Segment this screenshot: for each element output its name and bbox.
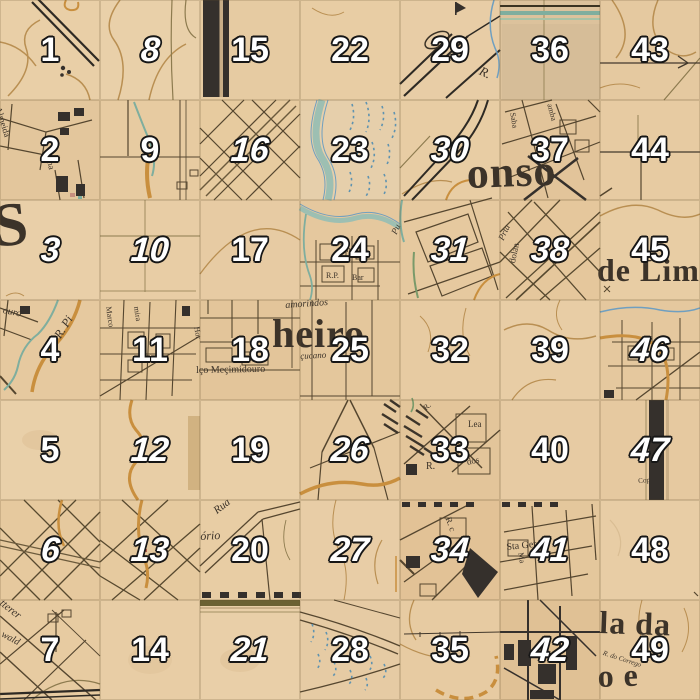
puzzle-tile-21[interactable]: 21: [200, 600, 300, 700]
puzzle-tile-37[interactable]: 37: [500, 100, 600, 200]
tile-number: 32: [431, 333, 469, 367]
puzzle-tile-34[interactable]: 34: [400, 500, 500, 600]
tile-number: 42: [530, 633, 570, 667]
puzzle-tile-4[interactable]: 4: [0, 300, 100, 400]
puzzle-tile-36[interactable]: 36: [500, 0, 600, 100]
puzzle-tile-14[interactable]: 14: [100, 600, 200, 700]
puzzle-tile-3[interactable]: 3: [0, 200, 100, 300]
puzzle-tile-45[interactable]: 45: [600, 200, 700, 300]
tile-number: 7: [41, 633, 60, 667]
puzzle-tile-19[interactable]: 19: [200, 400, 300, 500]
tile-number: 8: [139, 33, 160, 67]
puzzle-tile-20[interactable]: 20: [200, 500, 300, 600]
tile-number: 2: [41, 133, 60, 167]
tile-number: 47: [630, 433, 670, 467]
puzzle-tile-26[interactable]: 26: [300, 400, 400, 500]
puzzle-tile-27[interactable]: 27: [300, 500, 400, 600]
tile-number: 5: [41, 433, 60, 467]
puzzle-tile-48[interactable]: 48: [600, 500, 700, 600]
tile-number: 26: [330, 433, 370, 467]
tile-number: 30: [430, 133, 470, 167]
tile-number: 15: [231, 33, 269, 67]
tile-number: 48: [631, 533, 669, 567]
puzzle-tile-43[interactable]: 43: [600, 0, 700, 100]
puzzle-tile-12[interactable]: 12: [100, 400, 200, 500]
tile-number: 41: [530, 533, 570, 567]
tile-number: 29: [431, 33, 469, 67]
tile-number: 20: [231, 533, 269, 567]
puzzle-tile-49[interactable]: 49: [600, 600, 700, 700]
tile-number: 25: [331, 333, 369, 367]
tile-number: 36: [531, 33, 569, 67]
tile-number: 11: [132, 333, 168, 367]
tile-number: 23: [331, 133, 369, 167]
puzzle-tile-40[interactable]: 40: [500, 400, 600, 500]
puzzle-tile-29[interactable]: 29: [400, 0, 500, 100]
tile-number: 4: [41, 333, 60, 367]
tile-number: 35: [431, 633, 469, 667]
tile-number: 1: [41, 33, 60, 67]
puzzle-tile-47[interactable]: 47: [600, 400, 700, 500]
tile-number: 46: [630, 333, 670, 367]
puzzle-tile-16[interactable]: 16: [200, 100, 300, 200]
tile-number: 3: [39, 233, 60, 267]
puzzle-tile-10[interactable]: 10: [100, 200, 200, 300]
tile-number: 13: [130, 533, 170, 567]
tile-number: 37: [531, 133, 569, 167]
puzzle-tile-13[interactable]: 13: [100, 500, 200, 600]
tile-number: 33: [431, 433, 469, 467]
puzzle-tile-15[interactable]: 15: [200, 0, 300, 100]
puzzle-tile-46[interactable]: 46: [600, 300, 700, 400]
tile-number: 22: [331, 33, 369, 67]
puzzle-tile-6[interactable]: 6: [0, 500, 100, 600]
puzzle-tile-31[interactable]: 31: [400, 200, 500, 300]
tile-number: 38: [530, 233, 570, 267]
tile-number: 12: [130, 433, 170, 467]
tile-number: 24: [331, 233, 369, 267]
puzzle-tile-32[interactable]: 32: [400, 300, 500, 400]
puzzle-tile-7[interactable]: 7: [0, 600, 100, 700]
tile-number: 16: [230, 133, 270, 167]
tile-number: 6: [39, 533, 60, 567]
tile-number: 10: [130, 233, 170, 267]
tile-number: 19: [231, 433, 269, 467]
puzzle-tile-39[interactable]: 39: [500, 300, 600, 400]
tile-number: 14: [131, 633, 169, 667]
puzzle-tile-24[interactable]: 24: [300, 200, 400, 300]
puzzle-tile-17[interactable]: 17: [200, 200, 300, 300]
tile-number: 21: [230, 633, 270, 667]
puzzle-tile-9[interactable]: 9: [100, 100, 200, 200]
puzzle-tile-42[interactable]: 42: [500, 600, 600, 700]
tile-number: 45: [631, 233, 669, 267]
puzzle-tile-44[interactable]: 44: [600, 100, 700, 200]
puzzle-tile-35[interactable]: 35: [400, 600, 500, 700]
tile-number: 28: [331, 633, 369, 667]
tile-number: 43: [631, 33, 669, 67]
puzzle-tile-28[interactable]: 28: [300, 600, 400, 700]
tile-number: 49: [631, 633, 669, 667]
tile-number: 40: [531, 433, 569, 467]
puzzle-tile-23[interactable]: 23: [300, 100, 400, 200]
puzzle-tile-38[interactable]: 38: [500, 200, 600, 300]
puzzle-tile-18[interactable]: 18: [200, 300, 300, 400]
puzzle-tile-11[interactable]: 11: [100, 300, 200, 400]
puzzle-tile-8[interactable]: 8: [100, 0, 200, 100]
tile-number: 39: [531, 333, 569, 367]
tiles-layer: 1815222936432916233037443101724313845411…: [0, 0, 700, 700]
puzzle-tile-1[interactable]: 1: [0, 0, 100, 100]
puzzle-tile-41[interactable]: 41: [500, 500, 600, 600]
puzzle-board: Sonsoheirode Limla dao eAlmeidaLimaR.Sab…: [0, 0, 700, 700]
tile-number: 27: [330, 533, 370, 567]
puzzle-tile-2[interactable]: 2: [0, 100, 100, 200]
tile-number: 34: [430, 533, 470, 567]
tile-number: 44: [631, 133, 669, 167]
puzzle-tile-25[interactable]: 25: [300, 300, 400, 400]
puzzle-tile-22[interactable]: 22: [300, 0, 400, 100]
puzzle-tile-5[interactable]: 5: [0, 400, 100, 500]
tile-number: 17: [231, 233, 269, 267]
puzzle-tile-33[interactable]: 33: [400, 400, 500, 500]
puzzle-tile-30[interactable]: 30: [400, 100, 500, 200]
tile-number: 18: [231, 333, 269, 367]
tile-number: 31: [430, 233, 470, 267]
tile-number: 9: [141, 133, 160, 167]
